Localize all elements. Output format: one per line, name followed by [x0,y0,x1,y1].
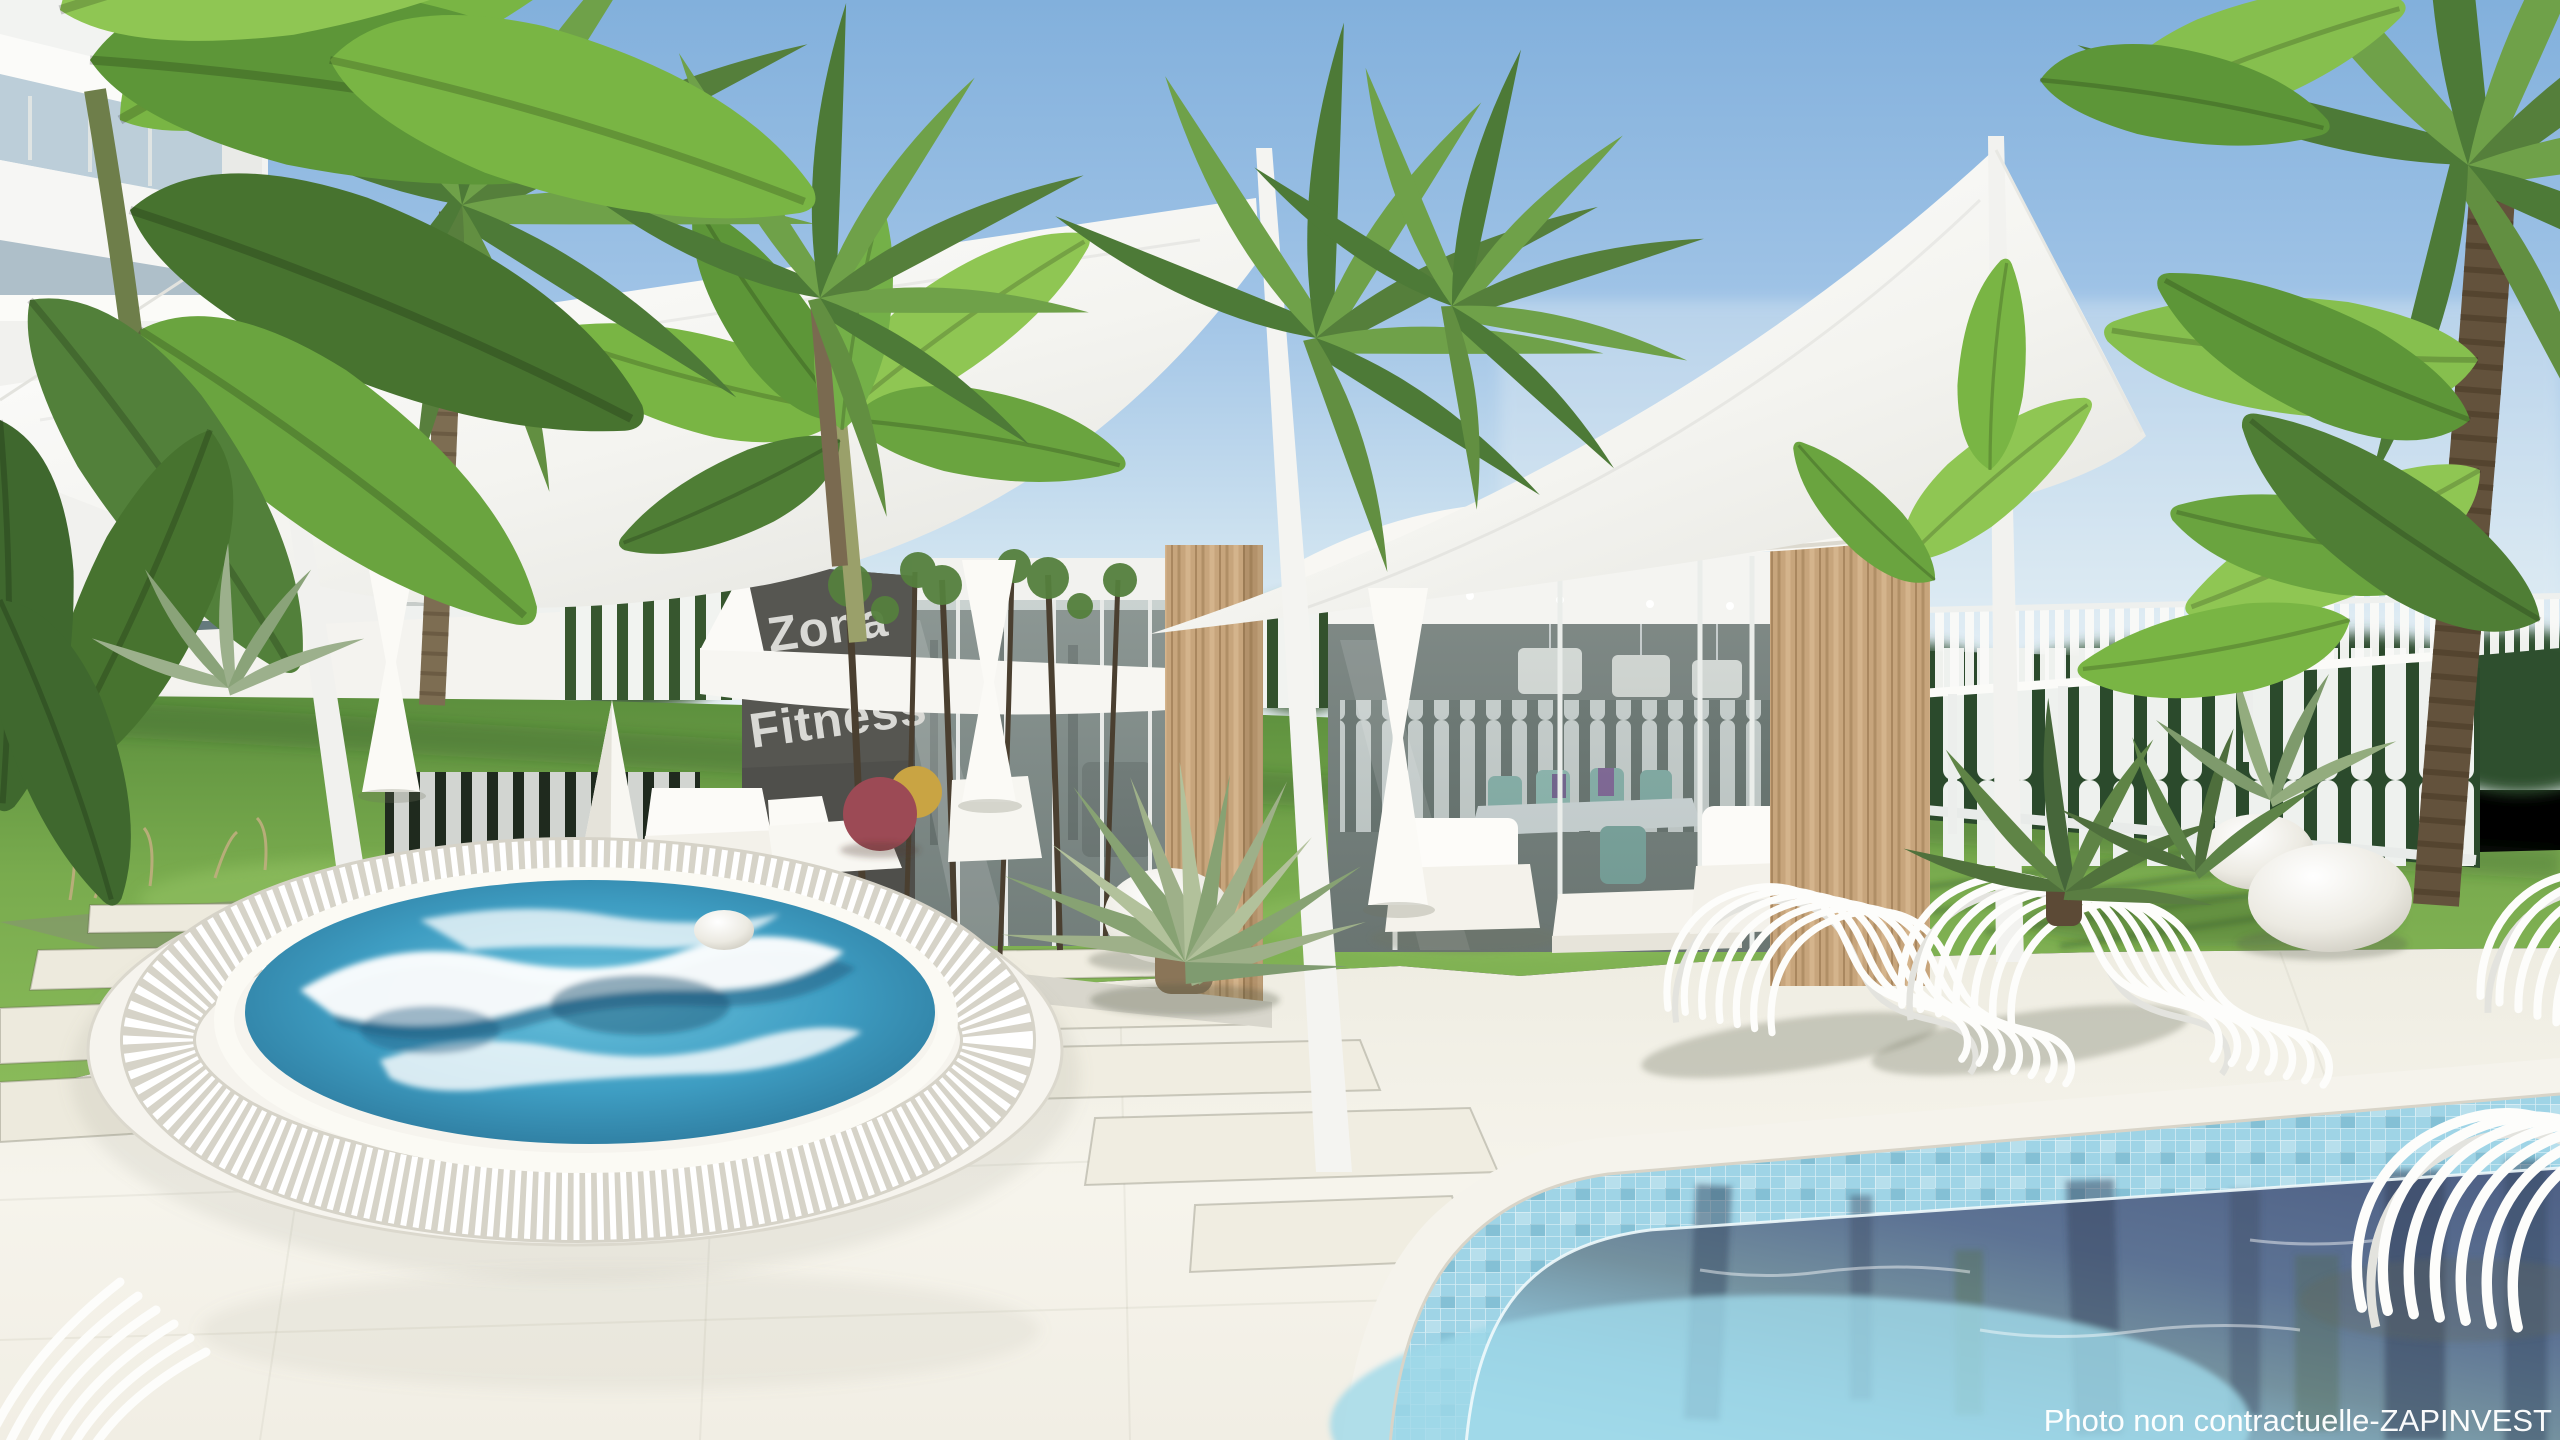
exercise-ball-maroon [843,777,917,851]
watermark-text: Photo non contractuelle-ZAPINVEST [2044,1403,2552,1438]
render-canvas: Zona Fitness [0,0,2560,1440]
jacuzzi [70,855,1080,1280]
pool-garden-render: Zona Fitness [0,0,2560,1440]
